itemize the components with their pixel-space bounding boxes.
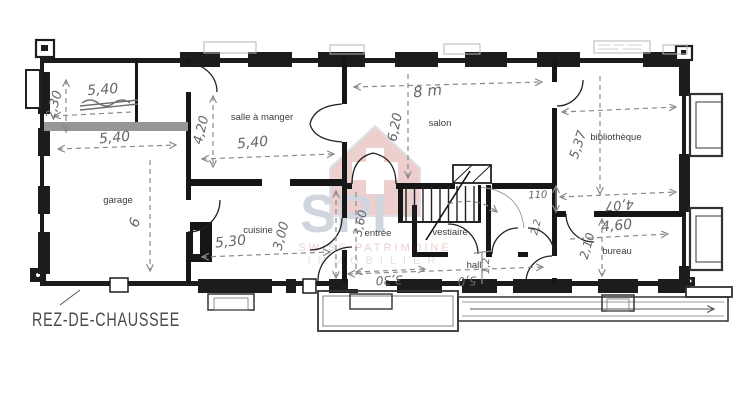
stair-landing [453,165,491,183]
dim-wc-110: 110 [528,190,548,202]
scanned-floor-plan: SPI SWISS PATRIMOINE IMMOBILIER [0,0,750,400]
dim-sam-width: 5,40 [236,134,269,153]
room-label-garage: garage [103,195,133,206]
room-label-bibliotheque: bibliothèque [590,132,641,143]
room-label-salon: salon [429,118,452,129]
dim-front-room-width: 5,40 [87,81,119,99]
room-label-hall: hall [467,260,482,271]
room-label-cuisine: cuisine [243,225,273,236]
room-label-entree: entrée [365,228,392,239]
room-label-vestiaire: vestiaire [432,227,467,238]
dim-bibliotheque-width: 4,07 [604,196,635,213]
room-label-salle-a-manger: salle à manger [231,112,293,123]
dim-hall-330: 3,30 [375,273,403,288]
room-label-bureau: bureau [602,246,632,257]
dim-salon-width: 8 m [412,81,443,102]
dim-hall-width: 1,2 [481,258,493,274]
dim-cuisine-width: 5,30 [214,232,247,251]
dim-garage-width: 5,40 [98,129,131,148]
dim-bureau-width: 4,60 [600,217,633,236]
left-wall-pilaster [26,70,40,108]
floor-title: REZ-DE-CHAUSSEE [32,310,180,331]
dim-hall-length: 5,0 [457,274,477,289]
